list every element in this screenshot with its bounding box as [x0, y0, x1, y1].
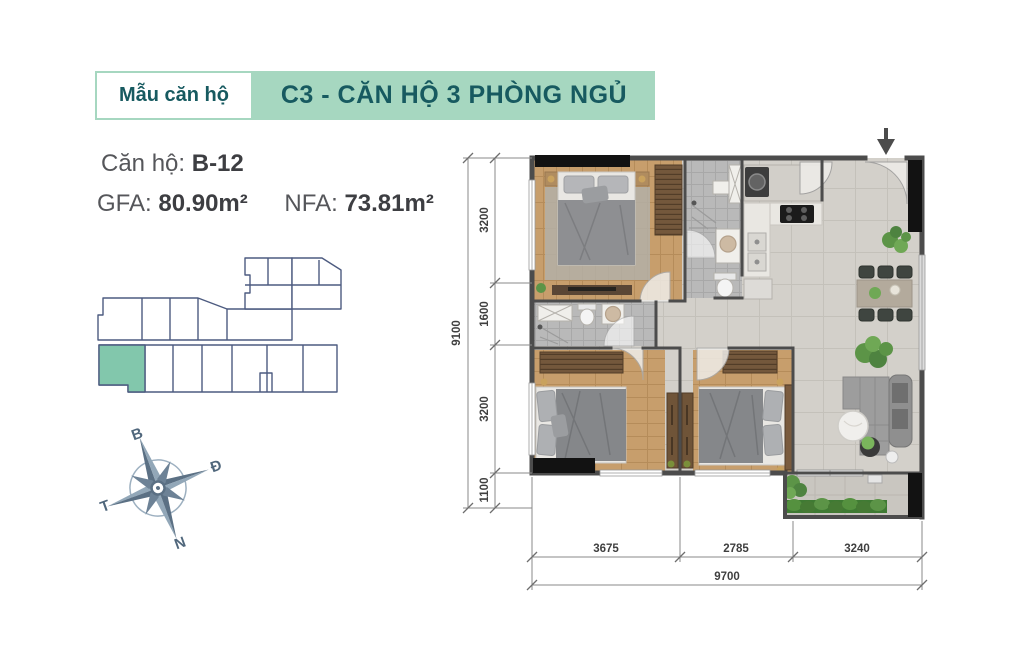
- window-bedroom3-bottom: [695, 470, 770, 476]
- keyplan-upper-right-block-2: [292, 258, 341, 309]
- column-bottom-left: [533, 458, 595, 473]
- bedroom3-closet-left: [682, 393, 693, 468]
- dining-chairs-bottom: [859, 309, 912, 321]
- title-banner: Mẫu căn hộ C3 - CĂN HỘ 3 PHÒNG NGỦ: [95, 71, 655, 120]
- master-plant: [536, 283, 546, 293]
- washing-machine-door: [749, 174, 765, 190]
- unit-area-line: GFA: 80.90m² NFA: 73.81m²: [97, 190, 434, 218]
- dining-table-plant: [869, 287, 881, 299]
- dim-bottom-2: 3240: [844, 543, 870, 555]
- banner-title: C3 - CĂN HỘ 3 PHÒNG NGỦ: [253, 71, 655, 120]
- kitchen-faucet-1: [755, 240, 760, 245]
- dim-bottom-1: 2785: [723, 543, 749, 555]
- entrance-arrow-icon: [877, 128, 895, 155]
- window-master-left: [529, 180, 535, 270]
- bath2-toilet-bowl: [580, 309, 594, 325]
- compass-label-west: T: [98, 497, 112, 516]
- window-living-right: [919, 255, 925, 370]
- fridge: [744, 279, 772, 299]
- bedroom2-lamp-top: [541, 379, 548, 386]
- shelf-cubby-2: [892, 409, 908, 429]
- plant-side-table-plant: [862, 437, 875, 450]
- compass-rose: B Đ T N: [95, 403, 230, 563]
- shelf-cubby-1: [892, 383, 908, 403]
- nfa-label: NFA:: [284, 190, 337, 217]
- nfa-value: 73.81m²: [344, 190, 433, 217]
- bath2-shower-head: [538, 325, 543, 330]
- column-balcony-right: [908, 473, 922, 517]
- cooktop: [780, 205, 814, 223]
- hall-plant-1: [668, 461, 675, 468]
- floor-plan-sheet: Mẫu căn hộ C3 - CĂN HỘ 3 PHÒNG NGỦ Căn h…: [0, 0, 1024, 661]
- dining-chairs-top: [859, 266, 912, 278]
- bath1-vessel-sink: [720, 236, 736, 252]
- bedroom3-pillow-1: [762, 390, 783, 422]
- unit-name-line: Căn hộ: B-12: [101, 150, 244, 178]
- floor-plan: 3200 1600 3200 1100 9100 3675 2785 3240 …: [440, 125, 935, 610]
- compass-label-east: Đ: [208, 457, 224, 477]
- keyplan-highlighted-unit: [99, 345, 145, 392]
- unit-name-value: B-12: [192, 150, 244, 177]
- bedroom2-wardrobe: [540, 352, 623, 373]
- kettle-side-table: [886, 451, 898, 463]
- window-bedroom2-bottom: [600, 470, 662, 476]
- dim-left-1: 1600: [479, 301, 491, 327]
- column-top-left: [535, 155, 630, 167]
- compass-label-north: B: [129, 425, 145, 445]
- banner-label: Mẫu căn hộ: [95, 71, 253, 120]
- key-plan: [85, 246, 365, 396]
- master-lamp-left: [548, 176, 555, 183]
- dining-table-bowl: [890, 285, 900, 295]
- hall-plant-2: [684, 461, 691, 468]
- bath1-toilet-bowl: [717, 279, 733, 297]
- balcony-ac-unit: [868, 475, 882, 483]
- dim-left-2: 3200: [479, 396, 491, 422]
- column-top-right: [908, 160, 922, 232]
- bedroom2-closet: [667, 393, 678, 468]
- bedroom3-bed-blanket: [699, 389, 763, 463]
- unit-name-label: Căn hộ:: [101, 150, 185, 177]
- dim-left-total: 9100: [451, 320, 463, 346]
- compass-label-south: N: [172, 534, 188, 554]
- master-tv: [568, 287, 616, 291]
- gfa-label: GFA:: [97, 190, 152, 217]
- window-bedroom2-left: [529, 383, 535, 455]
- bedroom3-wardrobe: [723, 351, 777, 373]
- dim-bottom-total: 9700: [714, 571, 740, 583]
- dim-left-3: 1100: [479, 478, 491, 503]
- bath1-sink-small: [713, 181, 729, 194]
- dim-bottom-0: 3675: [593, 543, 619, 555]
- master-lamp-right: [639, 176, 646, 183]
- bedroom3-lamp-top: [777, 379, 784, 386]
- master-wardrobe: [655, 165, 682, 235]
- bath2-vessel-sink: [606, 307, 621, 322]
- dining-table: [857, 280, 912, 307]
- gfa-value: 80.90m²: [158, 190, 247, 217]
- master-bed-blanket: [558, 200, 635, 265]
- kitchen-faucet-2: [755, 260, 760, 265]
- dim-left-0: 3200: [479, 207, 491, 233]
- bedroom3-pillow-2: [763, 424, 784, 455]
